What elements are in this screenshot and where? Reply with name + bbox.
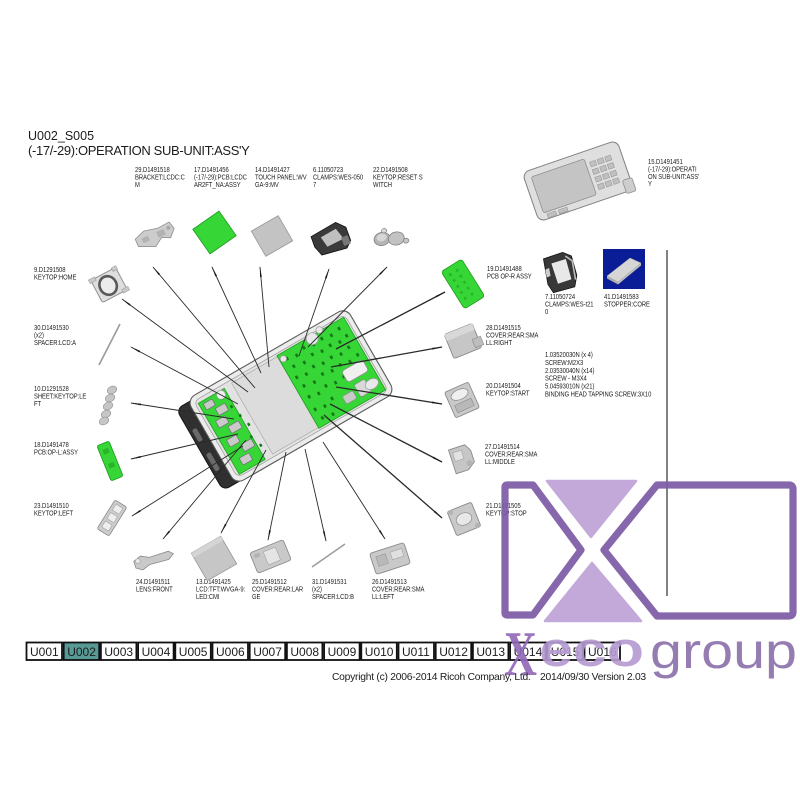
- svg-text:U002: U002: [67, 645, 96, 659]
- svg-text:U005: U005: [179, 645, 208, 659]
- svg-text:U010: U010: [365, 645, 394, 659]
- svg-text:U012: U012: [439, 645, 468, 659]
- svg-text:U002_S005: U002_S005: [28, 129, 94, 143]
- svg-text:U003: U003: [104, 645, 133, 659]
- svg-text:U008: U008: [290, 645, 319, 659]
- svg-text:Copyright (c) 2006-2014 Ricoh: Copyright (c) 2006-2014 Ricoh Company, L…: [332, 672, 531, 683]
- svg-text:U011: U011: [402, 645, 430, 659]
- svg-text:U013: U013: [476, 645, 505, 659]
- svg-text:23.D1491510KEYTOP:LEFT: 23.D1491510KEYTOP:LEFT: [34, 503, 73, 518]
- svg-text:24.D1491511LENS:FRONT: 24.D1491511LENS:FRONT: [136, 579, 173, 594]
- svg-text:U001: U001: [30, 645, 59, 659]
- svg-text:2014/09/30 Version 2.03: 2014/09/30 Version 2.03: [540, 672, 646, 683]
- svg-text:eco: eco: [539, 623, 644, 677]
- svg-text:(-17/-29):OPERATION SUB-UNIT:A: (-17/-29):OPERATION SUB-UNIT:ASS'Y: [28, 143, 250, 158]
- svg-text:U009: U009: [328, 645, 357, 659]
- svg-text:U004: U004: [142, 645, 171, 659]
- svg-text:U006: U006: [216, 645, 245, 659]
- svg-text:group: group: [650, 623, 797, 679]
- svg-text:U007: U007: [253, 645, 282, 659]
